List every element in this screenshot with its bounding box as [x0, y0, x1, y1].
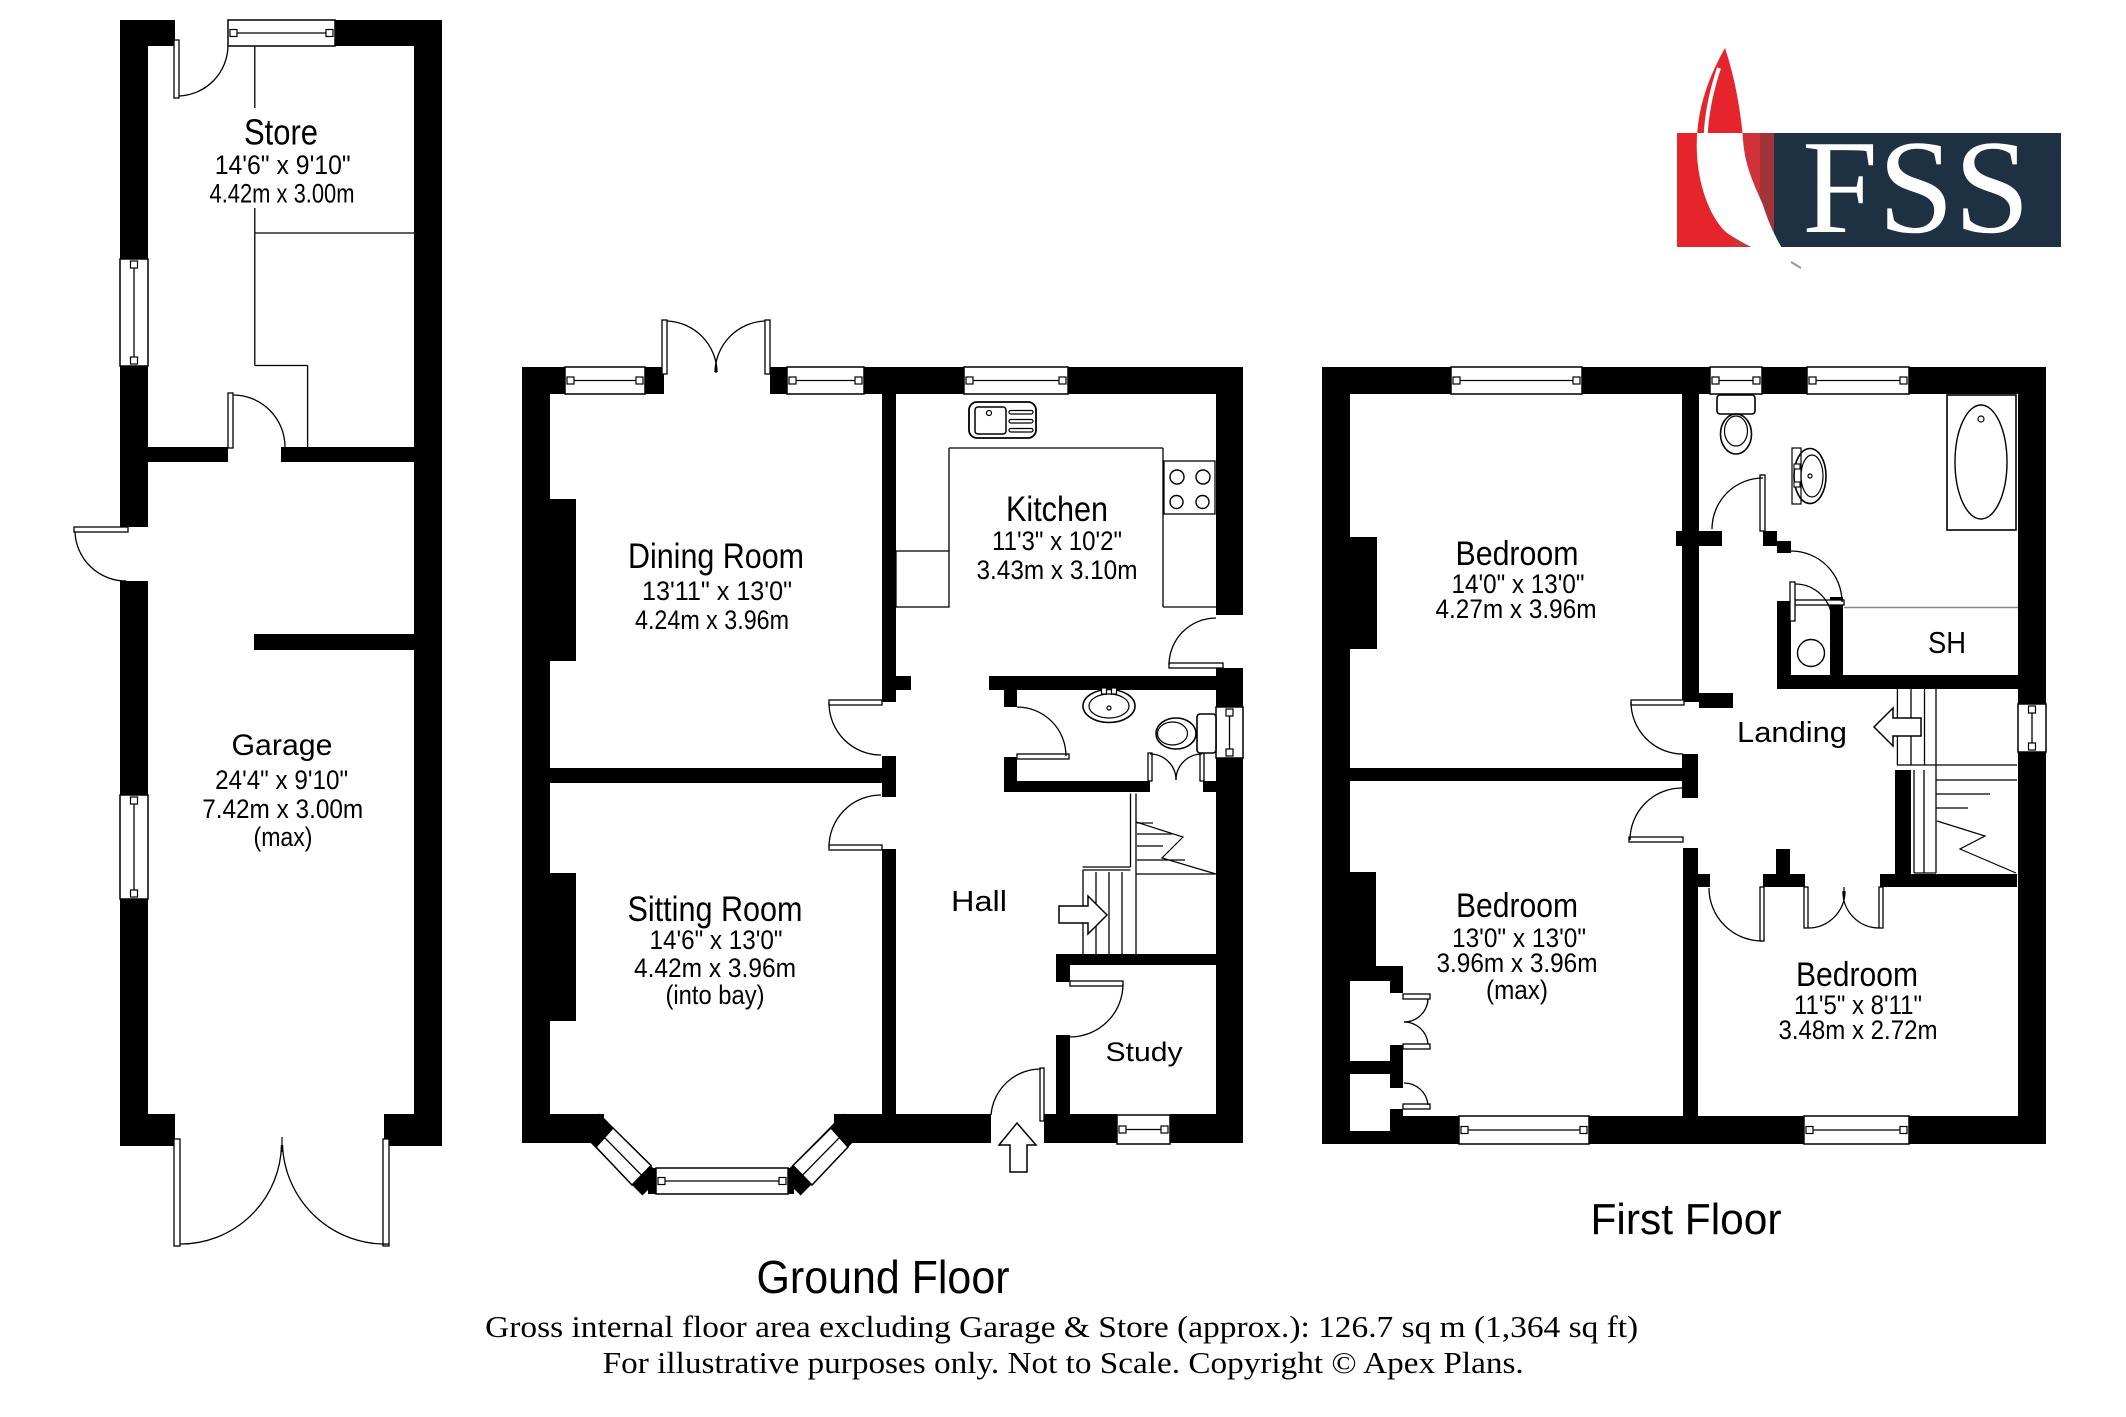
svg-text:Bedroom: Bedroom: [1456, 887, 1578, 925]
svg-text:3.48m x 2.72m: 3.48m x 2.72m: [1779, 1015, 1938, 1045]
svg-text:SH: SH: [1928, 625, 1966, 660]
svg-text:3.43m x 3.10m: 3.43m x 3.10m: [977, 555, 1138, 585]
svg-text:Hall: Hall: [951, 886, 1007, 918]
svg-text:Sitting Room: Sitting Room: [628, 890, 803, 929]
svg-text:Garage: Garage: [232, 729, 333, 762]
svg-text:4.24m x 3.96m: 4.24m x 3.96m: [635, 605, 789, 635]
svg-text:24'4" x 9'10": 24'4" x 9'10": [215, 765, 348, 795]
svg-text:Kitchen: Kitchen: [1006, 490, 1108, 529]
svg-text:14'6" x 13'0": 14'6" x 13'0": [650, 925, 783, 955]
svg-text:First Floor: First Floor: [1591, 1195, 1782, 1244]
svg-text:4.27m x 3.96m: 4.27m x 3.96m: [1436, 594, 1597, 624]
svg-text:Bedroom: Bedroom: [1796, 956, 1918, 994]
svg-text:FSS: FSS: [1802, 113, 2030, 261]
svg-text:Bedroom: Bedroom: [1456, 535, 1579, 573]
svg-text:3.96m x 3.96m: 3.96m x 3.96m: [1437, 948, 1598, 978]
svg-text:(max): (max): [1486, 975, 1548, 1005]
svg-text:Gross internal floor area excl: Gross internal floor area excluding Gara…: [485, 1309, 1638, 1344]
svg-text:Dining Room: Dining Room: [628, 537, 804, 576]
svg-text:11'3" x 10'2": 11'3" x 10'2": [992, 526, 1122, 556]
svg-text:Store: Store: [244, 112, 318, 153]
svg-text:13'11" x 13'0": 13'11" x 13'0": [642, 576, 792, 606]
svg-text:(into bay): (into bay): [666, 980, 765, 1010]
svg-text:Study: Study: [1106, 1037, 1184, 1067]
svg-text:4.42m x 3.00m: 4.42m x 3.00m: [210, 179, 355, 209]
svg-text:Landing: Landing: [1737, 717, 1847, 749]
svg-text:4.42m x 3.96m: 4.42m x 3.96m: [634, 953, 796, 983]
svg-text:For illustrative purposes only: For illustrative purposes only. Not to S…: [603, 1345, 1524, 1380]
svg-text:(max): (max): [254, 822, 313, 852]
svg-text:7.42m x 3.00m: 7.42m x 3.00m: [202, 794, 363, 824]
svg-text:14'6" x 9'10": 14'6" x 9'10": [215, 150, 351, 180]
svg-text:Ground Floor: Ground Floor: [757, 1251, 1010, 1303]
